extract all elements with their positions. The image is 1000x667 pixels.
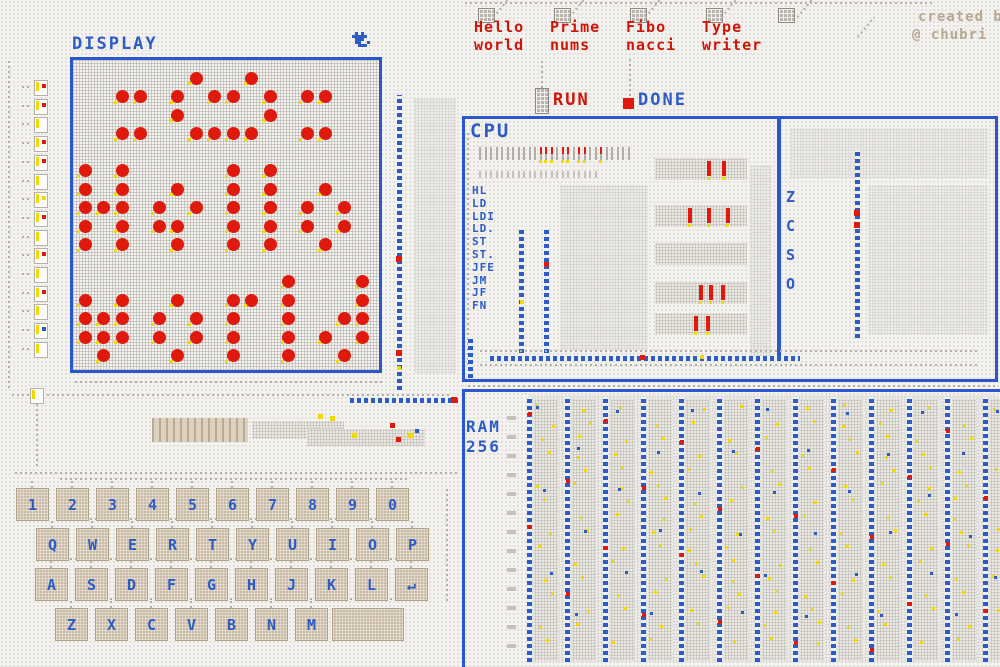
ram-bit-blue — [807, 449, 810, 452]
ram-bit-blue — [996, 410, 999, 413]
cpu-pin — [490, 171, 492, 178]
register-bit-set — [709, 285, 713, 300]
led-pin — [281, 360, 284, 363]
rail-red-dot — [390, 423, 395, 428]
ram-bit-yellow — [725, 546, 728, 549]
led-pin — [262, 193, 265, 196]
rail-yellow-dot — [330, 416, 335, 421]
program-label-type[interactable]: writer — [702, 38, 762, 53]
ram-bit-yellow — [548, 451, 551, 454]
ram-bit-yellow — [664, 497, 667, 500]
bus-yellow-dot — [397, 366, 401, 370]
led-pin — [336, 323, 339, 326]
led-pin — [96, 360, 99, 363]
keyboard-key-9[interactable]: 9 — [336, 488, 369, 521]
ram-bit-red — [528, 412, 532, 416]
ram-bit-yellow — [652, 531, 655, 534]
led-pin — [114, 304, 117, 307]
ram-address-text — [507, 644, 516, 648]
module-dot — [42, 140, 46, 144]
wire-dotted — [12, 394, 452, 396]
keyboard-key-i[interactable]: I — [316, 528, 349, 561]
program-label-hello[interactable]: world — [474, 38, 524, 53]
led-on — [208, 127, 221, 140]
led-on — [97, 201, 110, 214]
ram-bit-yellow — [617, 594, 620, 597]
led-pin — [114, 138, 117, 141]
led-on — [227, 201, 240, 214]
module-pin-strip — [36, 119, 39, 128]
ram-bit-yellow — [841, 592, 844, 595]
key-wire — [151, 480, 153, 488]
cpu-border-top — [462, 116, 998, 119]
cpu-bus — [519, 228, 524, 360]
led-pin — [225, 138, 228, 141]
led-on — [301, 220, 314, 233]
cpu-pin — [595, 147, 597, 160]
ram-bit-yellow — [958, 471, 961, 474]
ram-bit-yellow — [663, 518, 666, 521]
cpu-pin — [540, 171, 542, 178]
keyboard-key-j[interactable]: J — [275, 568, 308, 601]
led-pin — [262, 212, 265, 215]
key-wire — [31, 480, 33, 488]
led-on — [338, 312, 351, 325]
keyboard-key-z[interactable]: Z — [55, 608, 88, 641]
keyboard-key-v[interactable]: V — [175, 608, 208, 641]
keyboard-key-f[interactable]: F — [155, 568, 188, 601]
key-wire — [211, 520, 213, 528]
module-dot — [42, 103, 46, 107]
led-on — [79, 220, 92, 233]
wire-dotted — [15, 472, 460, 474]
register-bit-set — [726, 208, 730, 223]
ram-bit-yellow — [741, 486, 744, 489]
keyboard-key-b[interactable]: B — [215, 608, 248, 641]
register-bit-pin — [709, 301, 712, 304]
ram-bit-yellow — [894, 529, 897, 532]
module-pin-strip — [36, 288, 39, 297]
ram-bit-blue — [969, 535, 972, 538]
keyboard-key-0[interactable]: 0 — [376, 488, 409, 521]
register-bit-pin — [722, 177, 725, 180]
keyboard-key-8[interactable]: 8 — [296, 488, 329, 521]
ram-bit-yellow — [695, 562, 698, 565]
module-pin-strip — [36, 82, 39, 91]
cpu-pin — [479, 147, 481, 160]
ram-column-bus — [831, 397, 836, 662]
ram-bit-yellow — [856, 451, 859, 454]
ram-bit-red — [566, 479, 570, 483]
keyboard-key-e[interactable]: E — [116, 528, 149, 561]
wire-blue — [490, 356, 800, 361]
led-on — [171, 109, 184, 122]
program-label-hello[interactable]: Hello — [474, 20, 524, 35]
led-pin — [96, 341, 99, 344]
keyboard-key-h[interactable]: H — [235, 568, 268, 601]
done-label: DONE — [638, 92, 687, 109]
cpu-flag-label-c: C — [786, 219, 796, 234]
cpu-register-block — [655, 205, 747, 227]
led-on — [264, 220, 277, 233]
ram-bit-yellow — [996, 549, 999, 552]
key-wire — [391, 480, 393, 488]
display-sprite-icon — [352, 32, 355, 35]
ram-bit-blue — [625, 571, 628, 574]
register-bit-pin — [699, 301, 702, 304]
led-on — [79, 331, 92, 344]
ram-address-text — [507, 511, 516, 515]
cpu-instruction-label: JF — [472, 287, 487, 298]
cpu-flag-label-z: Z — [786, 190, 796, 205]
ram-bit-yellow — [579, 516, 582, 519]
program-label-prime[interactable]: Prime — [550, 20, 600, 35]
rail-yellow-dot — [318, 414, 323, 419]
ram-bit-yellow — [619, 406, 622, 409]
keyboard-key-4[interactable]: 4 — [136, 488, 169, 521]
keyboard-key-c[interactable]: C — [135, 608, 168, 641]
register-bit-set — [699, 285, 703, 300]
key-wire — [270, 600, 272, 608]
led-on — [116, 220, 129, 233]
ram-bit-yellow — [659, 544, 662, 547]
keyboard-key-q[interactable]: Q — [36, 528, 69, 561]
led-pin — [114, 249, 117, 252]
ram-bit-yellow — [543, 498, 546, 501]
ram-column-bus — [755, 397, 760, 662]
ram-bit-yellow — [885, 456, 888, 459]
wire-dotted — [75, 381, 385, 383]
ram-bit-yellow — [549, 532, 552, 535]
led-on — [190, 331, 203, 344]
led-pin — [114, 101, 117, 104]
ram-bit-yellow — [852, 579, 855, 582]
ram-bit-yellow — [587, 610, 590, 613]
led-pin — [318, 249, 321, 252]
ram-bit-yellow — [649, 638, 652, 641]
led-on — [319, 331, 332, 344]
program-label-fibo[interactable]: nacci — [626, 38, 676, 53]
led-on — [264, 183, 277, 196]
circuit-texture — [790, 128, 988, 178]
keyboard-key-s[interactable]: S — [75, 568, 108, 601]
ram-bit-yellow — [730, 499, 733, 502]
keyboard-key-k[interactable]: K — [315, 568, 348, 601]
ram-bit-red — [718, 507, 722, 511]
ram-bit-yellow — [882, 563, 885, 566]
ram-bit-yellow — [775, 590, 778, 593]
cpu-bus — [544, 228, 549, 360]
ram-bit-yellow — [953, 518, 956, 521]
ram-bit-yellow — [625, 440, 628, 443]
ram-bit-blue — [741, 611, 744, 614]
led-on — [282, 331, 295, 344]
keyboard-key-enter[interactable]: ↵ — [395, 568, 428, 601]
led-on — [319, 238, 332, 251]
led-pin — [151, 323, 154, 326]
led-on — [116, 312, 129, 325]
led-on — [116, 331, 129, 344]
ram-bit-yellow — [589, 422, 592, 425]
program-label-fibo[interactable]: Fibo — [626, 20, 666, 35]
ram-border-top — [462, 389, 1000, 392]
led-pin — [77, 249, 80, 252]
led-pin — [151, 212, 154, 215]
ram-bit-yellow — [960, 531, 963, 534]
keyboard-key-a[interactable]: A — [35, 568, 68, 601]
led-on — [356, 294, 369, 307]
ram-bit-red — [566, 592, 570, 596]
ram-bit-yellow — [650, 471, 653, 474]
keyboard-key-o[interactable]: O — [356, 528, 389, 561]
ram-bit-yellow — [689, 528, 692, 531]
keyboard-key-2[interactable]: 2 — [56, 488, 89, 521]
ram-bit-yellow — [687, 468, 690, 471]
ram-bit-yellow — [844, 485, 847, 488]
keyboard-key-m[interactable]: M — [295, 608, 328, 641]
keyboard-key-6[interactable]: 6 — [216, 488, 249, 521]
led-on — [153, 201, 166, 214]
keyboard-key-w[interactable]: W — [76, 528, 109, 561]
led-pin — [77, 323, 80, 326]
cpu-border-bottom — [462, 379, 998, 382]
cpu-pin-red — [578, 147, 580, 154]
register-bit-set — [688, 208, 692, 223]
register-bit-pin — [726, 224, 729, 227]
keyboard-key-3[interactable]: 3 — [96, 488, 129, 521]
ram-bit-yellow — [803, 514, 806, 517]
keyboard-key-l[interactable]: L — [355, 568, 388, 601]
module-dot — [42, 327, 46, 331]
keyboard-key-x[interactable]: X — [95, 608, 128, 641]
led-on — [190, 312, 203, 325]
ram-bit-yellow — [842, 425, 845, 428]
cpu-register-block — [655, 313, 747, 335]
led-on — [227, 312, 240, 325]
led-pin — [281, 286, 284, 289]
key-wire — [290, 560, 292, 568]
ram-bit-yellow — [884, 623, 887, 626]
wire-dotted-top — [465, 2, 935, 4]
cpu-pin — [562, 171, 564, 178]
led-on — [264, 238, 277, 251]
cpu-register-block — [655, 243, 747, 265]
ram-bit-yellow — [703, 408, 706, 411]
ram-bit-yellow — [847, 626, 850, 629]
key-wire — [70, 600, 72, 608]
keyboard-key-1[interactable]: 1 — [16, 488, 49, 521]
led-on — [319, 90, 332, 103]
cpu-pin-red — [567, 147, 569, 154]
led-on — [227, 294, 240, 307]
bus-red-dot — [854, 222, 860, 228]
ram-bit-yellow — [920, 641, 923, 644]
key-wire — [351, 480, 353, 488]
led-on — [227, 90, 240, 103]
module-pin-strip — [36, 101, 39, 110]
ram-column-bus — [907, 397, 912, 662]
ram-bit-yellow — [778, 483, 781, 486]
ram-bit-yellow — [539, 626, 542, 629]
cpu-pin-yellow — [577, 160, 580, 163]
bus-red-dot — [396, 256, 402, 262]
keyboard-key-d[interactable]: D — [115, 568, 148, 601]
led-pin — [225, 341, 228, 344]
ram-bit-red — [604, 546, 608, 550]
ram-bit-yellow — [816, 561, 819, 564]
led-pin — [262, 230, 265, 233]
module-dot — [42, 215, 46, 219]
led-pin — [151, 341, 154, 344]
led-pin — [281, 304, 284, 307]
cpu-pin — [523, 147, 525, 160]
key-wire — [131, 520, 133, 528]
cpu-register-block — [655, 158, 747, 180]
ram-bit-yellow — [779, 564, 782, 567]
keyboard-key-g[interactable]: G — [195, 568, 228, 601]
ram-bit-blue — [698, 492, 701, 495]
led-pin — [114, 175, 117, 178]
cpu-pin-yellow — [550, 160, 553, 163]
led-pin — [225, 360, 228, 363]
cpu-pin-red — [545, 147, 547, 154]
led-on — [116, 127, 129, 140]
wire-dotted — [22, 86, 32, 88]
ram-bit-red — [832, 468, 836, 472]
module-pin-strip — [36, 213, 39, 222]
led-on — [79, 183, 92, 196]
led-pin — [114, 230, 117, 233]
cpu-pin — [507, 171, 509, 178]
keyboard-key-y[interactable]: Y — [236, 528, 269, 561]
ram-bit-yellow — [544, 579, 547, 582]
ram-bit-yellow — [573, 482, 576, 485]
keyboard-key-n[interactable]: N — [255, 608, 288, 641]
ram-address-text — [507, 435, 516, 439]
led-on — [190, 127, 203, 140]
led-pin — [96, 212, 99, 215]
ram-bit-yellow — [541, 438, 544, 441]
led-pin — [170, 304, 173, 307]
ram-bit-blue — [848, 490, 851, 493]
key-wire — [370, 560, 372, 568]
cpu-pin — [501, 147, 503, 160]
ram-bit-red — [870, 648, 874, 652]
ram-bit-blue — [550, 572, 553, 575]
ram-bit-yellow — [538, 545, 541, 548]
ram-bit-yellow — [892, 469, 895, 472]
keyboard-key-r[interactable]: R — [156, 528, 189, 561]
ram-bit-red — [642, 486, 646, 490]
run-button[interactable] — [535, 88, 549, 114]
ram-column-bus — [793, 397, 798, 662]
led-on — [134, 90, 147, 103]
led-on — [171, 90, 184, 103]
ram-bit-red — [604, 419, 608, 423]
program-button-icon[interactable] — [778, 8, 795, 23]
led-on — [227, 331, 240, 344]
led-pin — [262, 249, 265, 252]
led-on — [171, 220, 184, 233]
led-on — [153, 331, 166, 344]
ram-bit-red — [794, 641, 798, 645]
program-label-prime[interactable]: nums — [550, 38, 590, 53]
cpu-pin — [556, 171, 558, 178]
cpu-pin — [529, 147, 531, 160]
ram-bit-red — [680, 553, 684, 557]
ram-bit-yellow — [927, 406, 930, 409]
led-pin — [188, 212, 191, 215]
ram-bit-yellow — [690, 609, 693, 612]
key-wire — [311, 480, 313, 488]
ram-bit-yellow — [846, 545, 849, 548]
ram-bit-blue — [955, 613, 958, 616]
ram-bit-yellow — [774, 611, 777, 614]
led-pin — [355, 304, 358, 307]
keyboard-key-5[interactable]: 5 — [176, 488, 209, 521]
wire-red-dot — [640, 355, 645, 360]
ram-bit-blue — [773, 491, 776, 494]
ram-bit-yellow — [735, 452, 738, 455]
ram-bit-yellow — [965, 484, 968, 487]
module-pin-strip — [36, 344, 39, 353]
cpu-pin — [512, 171, 514, 178]
ram-bit-yellow — [551, 592, 554, 595]
ram-bit-yellow — [688, 549, 691, 552]
register-bit-pin — [721, 301, 724, 304]
cpu-flag-label-s: S — [786, 248, 796, 263]
led-pin — [336, 230, 339, 233]
ram-bit-yellow — [732, 559, 735, 562]
led-on — [116, 294, 129, 307]
ram-column-bus — [945, 397, 950, 662]
ram-bit-red — [756, 447, 760, 451]
keyboard-key-t[interactable]: T — [196, 528, 229, 561]
ram-bit-yellow — [770, 637, 773, 640]
ram-bit-yellow — [887, 516, 890, 519]
ram-bit-yellow — [813, 420, 816, 423]
ram-bit-yellow — [773, 530, 776, 533]
ram-address-text — [507, 473, 516, 477]
keyboard-key-space[interactable] — [332, 608, 404, 641]
keyboard-key-7[interactable]: 7 — [256, 488, 289, 521]
circuit-texture — [414, 98, 456, 373]
led-on — [227, 164, 240, 177]
keyboard-key-p[interactable]: P — [396, 528, 429, 561]
keyboard-key-u[interactable]: U — [276, 528, 309, 561]
led-pin — [262, 175, 265, 178]
wire-yellow-dot — [700, 355, 704, 359]
ram-address-text — [507, 568, 516, 572]
led-pin — [225, 230, 228, 233]
ram-bit-yellow — [733, 640, 736, 643]
register-bit-pin — [706, 332, 709, 335]
bus-yellow-dot — [520, 300, 524, 304]
module-dot — [42, 290, 46, 294]
led-on — [171, 238, 184, 251]
program-label-type[interactable]: Type — [702, 20, 742, 35]
led-pin — [318, 138, 321, 141]
led-pin — [170, 193, 173, 196]
ram-bit-blue — [618, 488, 621, 491]
key-wire — [190, 600, 192, 608]
done-indicator — [623, 98, 634, 109]
led-on — [227, 238, 240, 251]
wire-dotted — [480, 364, 980, 366]
cpu-pin — [534, 171, 536, 178]
ram-cell-strip — [534, 399, 558, 661]
led-on — [282, 312, 295, 325]
